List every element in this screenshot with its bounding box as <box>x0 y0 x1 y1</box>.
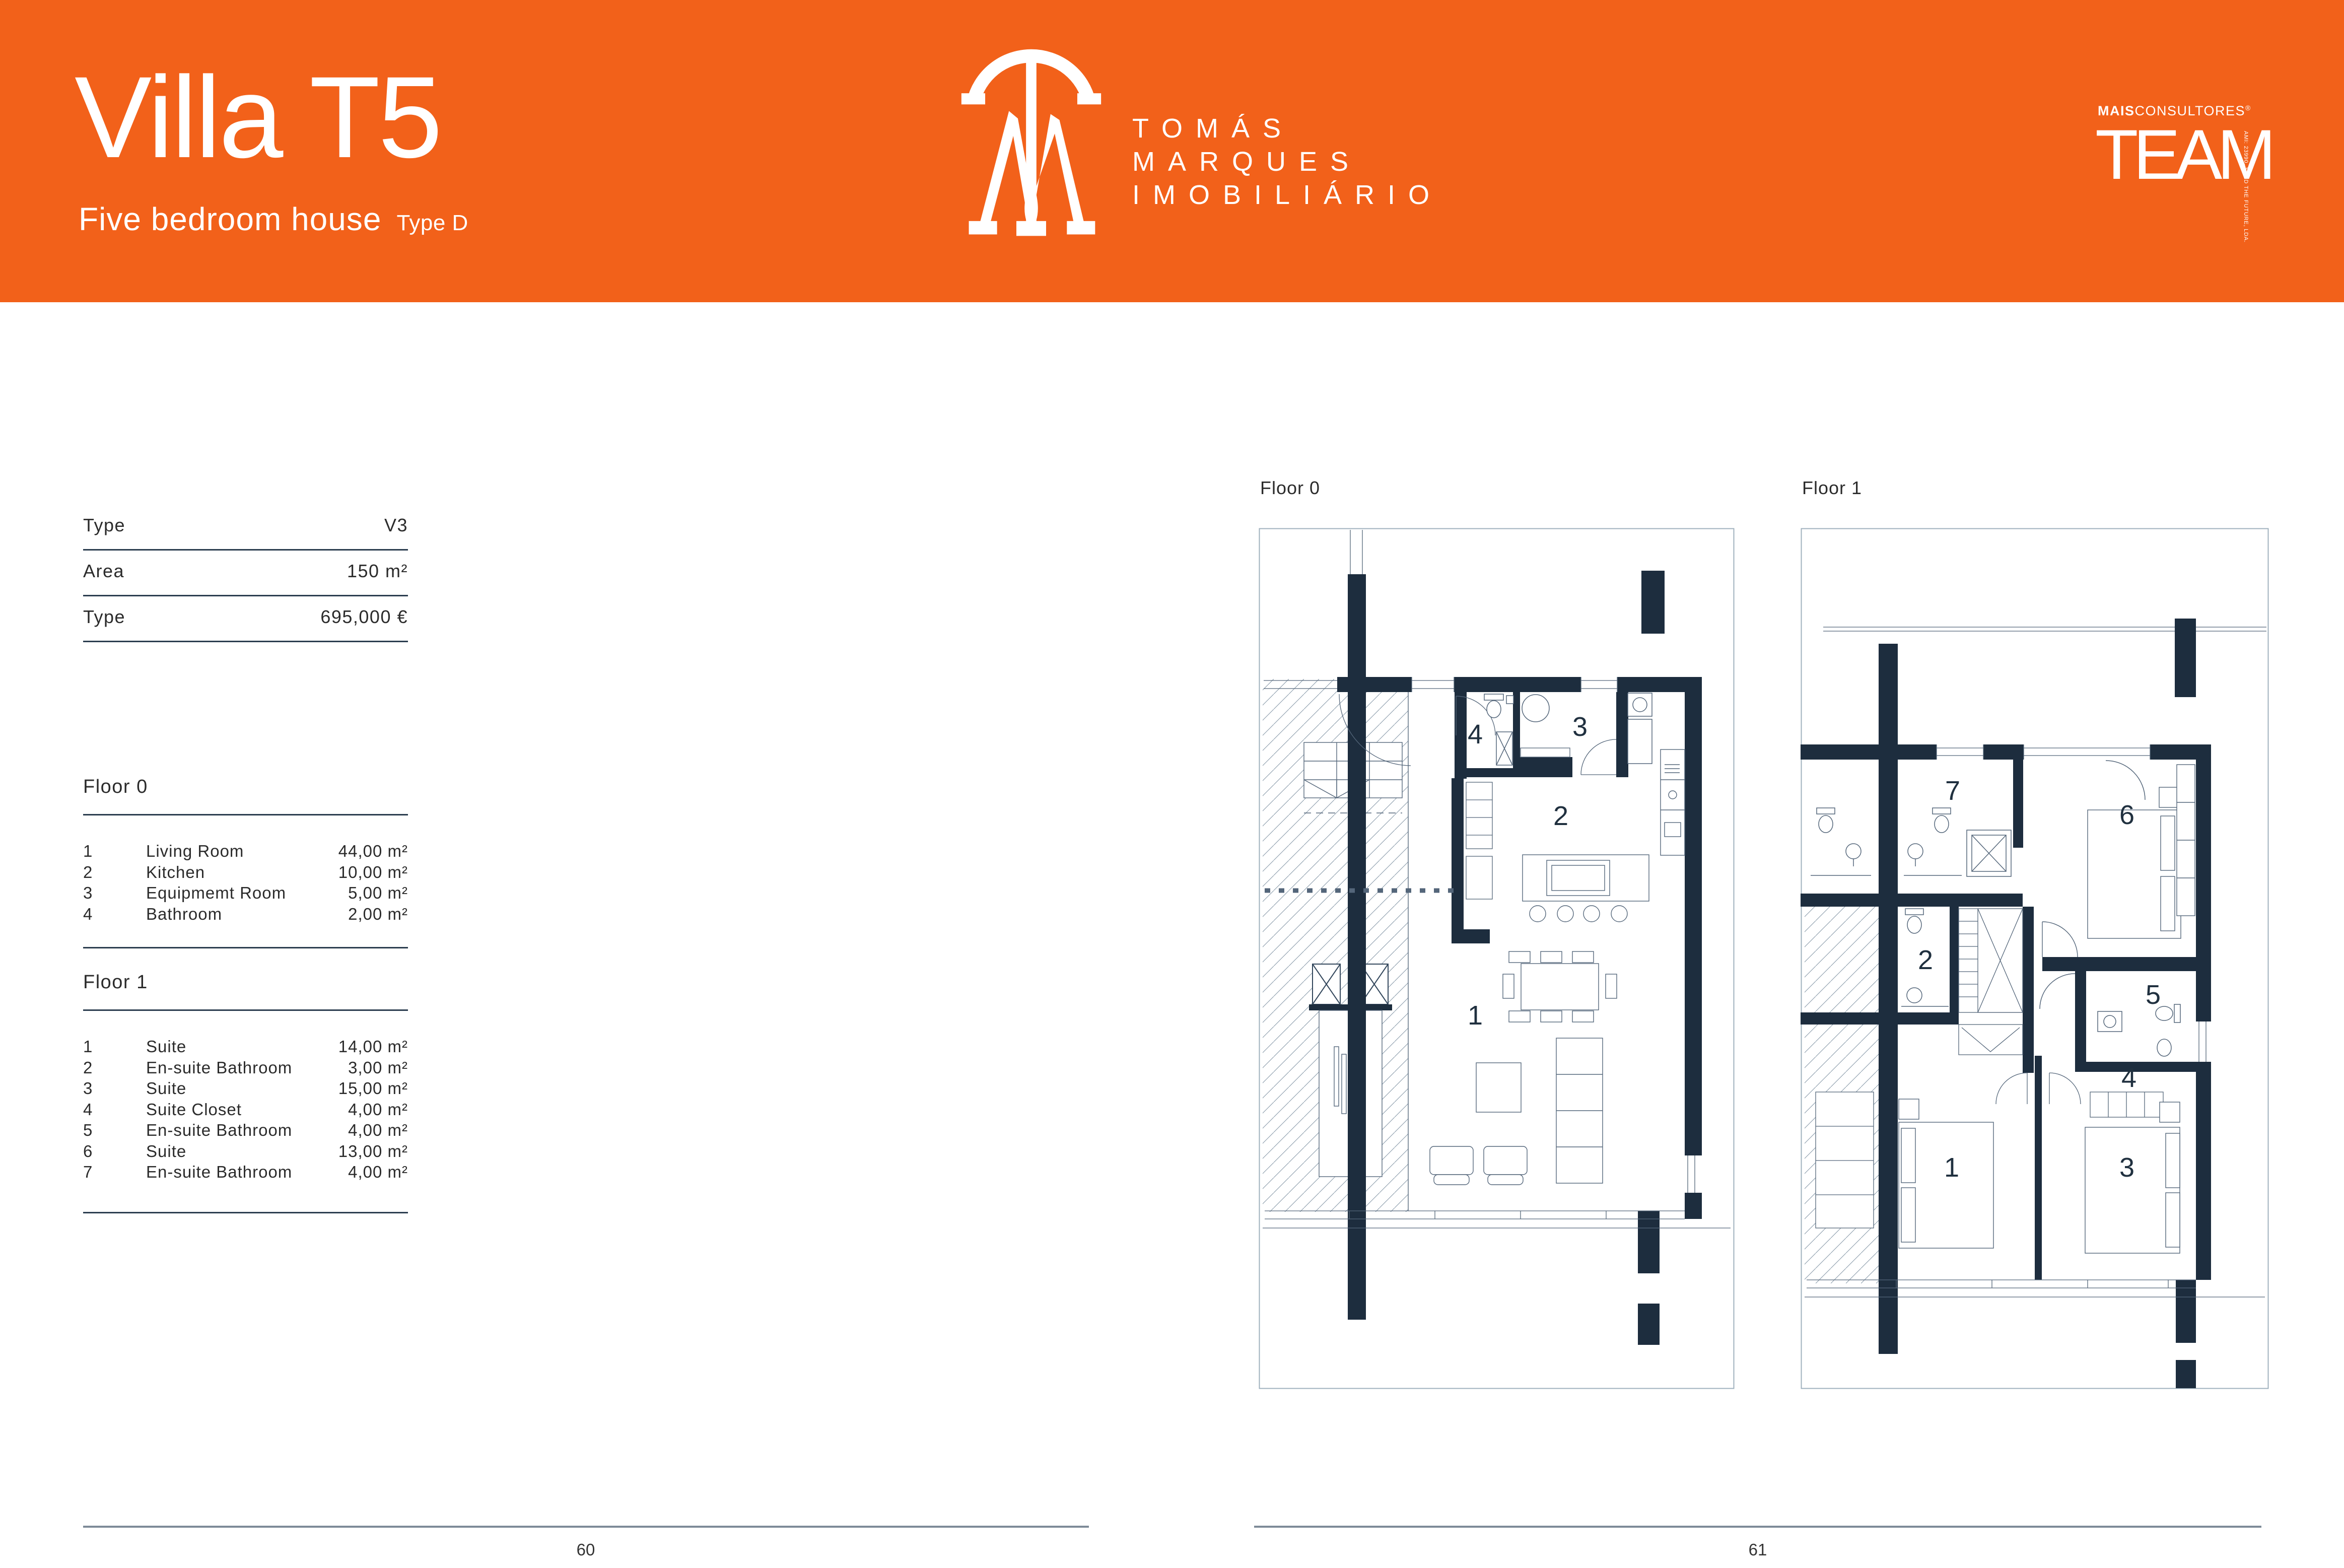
stool-icon <box>1611 906 1627 922</box>
divider <box>83 1212 408 1213</box>
room-label: 6 <box>2119 800 2134 830</box>
tm-monogram-icon <box>957 28 1106 257</box>
stairs <box>1959 909 2023 1055</box>
pillow <box>2161 876 2175 931</box>
list-item: 1Living Room44,00 m² <box>83 841 408 862</box>
room-area: 4,00 m² <box>348 1099 408 1120</box>
list-item: 2Kitchen10,00 m² <box>83 862 408 883</box>
boiler-icon <box>1522 695 1549 722</box>
floor0-legend: Floor 0 1Living Room44,00 m² 2Kitchen10,… <box>83 776 408 948</box>
room-name: En-suite Bathroom <box>146 1057 348 1078</box>
dining-set <box>1503 951 1617 1022</box>
room-label: 1 <box>1944 1152 1959 1183</box>
room-area: 4,00 m² <box>348 1120 408 1141</box>
spec-row-type: Type V3 <box>83 505 408 551</box>
toilet-icon <box>2174 1004 2180 1022</box>
room-number: 1 <box>83 841 146 862</box>
room-area: 13,00 m² <box>338 1141 408 1162</box>
room-area: 44,00 m² <box>338 841 408 862</box>
door-arc <box>2042 922 2078 957</box>
room-number: 2 <box>83 862 146 883</box>
spec-label: Type <box>83 606 125 628</box>
toilet-icon <box>1933 808 1951 814</box>
sink-icon <box>1846 844 1861 859</box>
floor0-room-list: 1Living Room44,00 m² 2Kitchen10,00 m² 3E… <box>83 841 408 924</box>
list-item: 4Bathroom2,00 m² <box>83 904 408 925</box>
toilet-icon <box>1819 815 1833 833</box>
header-band: Villa T5 Five bedroom houseType D <box>0 0 2344 302</box>
spec-table: Type V3 Area 150 m² Type 695,000 € <box>83 505 408 642</box>
stool-icon <box>1557 906 1573 922</box>
floor1-legend: Floor 1 1Suite14,00 m² 2En-suite Bathroo… <box>83 971 408 1213</box>
room-area: 2,00 m² <box>348 904 408 925</box>
room-label: 2 <box>1918 945 1933 975</box>
room-label: 3 <box>1572 712 1588 742</box>
room-name: Living Room <box>146 841 338 862</box>
nightstand <box>1899 1099 1919 1119</box>
floor1-plan-drawing: 1 2 3 4 5 6 7 <box>1801 528 2269 1389</box>
sink-icon <box>1907 988 1922 1003</box>
stool-icon <box>1583 906 1600 922</box>
chair-icon <box>1509 951 1530 963</box>
suite6-furniture <box>2042 765 2195 957</box>
appliance-icon <box>1628 719 1652 764</box>
room-number: 3 <box>83 882 146 904</box>
room-number: 1 <box>83 1036 146 1057</box>
room-name: En-suite Bathroom <box>146 1162 348 1183</box>
pillow <box>2166 1133 2180 1188</box>
page-title: Villa T5 <box>75 59 441 175</box>
toilet-icon <box>1905 909 1923 915</box>
page-subtitle: Five bedroom houseType D <box>79 200 468 238</box>
partner-logo: MAISCONSULTORES® TEAM AMI: 23990. SEED T… <box>2098 103 2251 119</box>
toilet-icon <box>1935 815 1949 833</box>
divider <box>83 947 408 948</box>
pillow <box>2161 816 2175 870</box>
toilet-icon <box>1907 916 1921 933</box>
list-item: 2En-suite Bathroom3,00 m² <box>83 1057 408 1078</box>
subtitle-text: Five bedroom house <box>79 201 381 237</box>
footer-divider-right <box>1254 1526 2261 1528</box>
room-area: 4,00 m² <box>348 1162 408 1183</box>
floor0-heading: Floor 0 <box>83 776 408 798</box>
room-number: 4 <box>83 904 146 925</box>
list-item: 5En-suite Bathroom4,00 m² <box>83 1120 408 1141</box>
door-arc <box>2106 761 2145 800</box>
registered-mark: ® <box>2245 104 2251 112</box>
dining-table <box>1521 964 1599 1010</box>
floor0-plan-drawing: 1 2 3 4 <box>1259 528 1735 1389</box>
list-item: 4Suite Closet4,00 m² <box>83 1099 408 1120</box>
toilet-icon <box>1487 701 1501 718</box>
room-number: 7 <box>83 1162 146 1183</box>
bidet-icon <box>2157 1039 2171 1056</box>
room-area: 5,00 m² <box>348 882 408 904</box>
floor0-plan: 1 2 3 4 <box>1259 528 1735 1392</box>
room-label: 7 <box>1945 776 1960 806</box>
page-number-left: 60 <box>566 1540 606 1559</box>
list-item: 6Suite13,00 m² <box>83 1141 408 1162</box>
kitchen-counter <box>1661 749 1685 855</box>
brand-line-3: IMOBILIÁRIO <box>1132 178 1442 212</box>
room-name: Kitchen <box>146 862 338 883</box>
floor1-room-list: 1Suite14,00 m² 2En-suite Bathroom3,00 m²… <box>83 1036 408 1183</box>
closet-box <box>1816 1092 1874 1228</box>
spec-label: Area <box>83 561 124 582</box>
spec-value: 695,000 € <box>320 606 408 628</box>
bath-floor <box>1805 760 1879 894</box>
coffee-table <box>1476 1063 1521 1112</box>
brand-wordmark: TOMÁS MARQUES IMOBILIÁRIO <box>1132 112 1442 212</box>
plan1-label: Floor 1 <box>1802 478 1862 499</box>
room-label: 4 <box>1468 719 1483 749</box>
divider <box>83 814 408 815</box>
spec-value: V3 <box>384 515 408 536</box>
stove-icon <box>1669 791 1677 799</box>
list-item: 3Equipmemt Room5,00 m² <box>83 882 408 904</box>
chair-icon <box>1606 974 1617 998</box>
list-item: 3Suite15,00 m² <box>83 1078 408 1099</box>
partner-side-note: AMI: 23990. SEED THE FUTURE, LDA. <box>2243 131 2249 243</box>
chair-icon <box>1541 1011 1562 1022</box>
bathroom-fixtures <box>1484 694 1513 765</box>
type-tag: Type D <box>396 211 468 235</box>
brand-line-2: MARQUES <box>1132 145 1442 178</box>
chair-icon <box>1503 974 1514 998</box>
brand-line-1: TOMÁS <box>1132 112 1442 145</box>
chair-icon <box>1541 951 1562 963</box>
living-furniture <box>1430 1038 1603 1185</box>
kitchen-island <box>1523 855 1649 922</box>
toilet-icon <box>1817 808 1835 814</box>
flush-icon <box>1506 696 1513 704</box>
brochure-page: Villa T5 Five bedroom houseType D <box>0 0 2344 1568</box>
room-area: 10,00 m² <box>338 862 408 883</box>
pillow <box>1901 1188 1915 1242</box>
pillow <box>1901 1128 1915 1183</box>
plan0-label: Floor 0 <box>1260 478 1320 499</box>
room-label: 1 <box>1468 1000 1483 1031</box>
spec-row-area: Area 150 m² <box>83 551 408 596</box>
list-item: 1Suite14,00 m² <box>83 1036 408 1057</box>
room-number: 3 <box>83 1078 146 1099</box>
footer-divider-left <box>83 1526 1089 1528</box>
chair-icon <box>1572 951 1594 963</box>
spec-value: 150 m² <box>347 561 408 582</box>
room-number: 5 <box>83 1120 146 1141</box>
room-name: Suite Closet <box>146 1099 348 1120</box>
floor1-plan: 1 2 3 4 5 6 7 <box>1801 528 2269 1392</box>
chair-icon <box>1572 1011 1594 1022</box>
list-item: 7En-suite Bathroom4,00 m² <box>83 1162 408 1183</box>
room-name: Bathroom <box>146 904 348 925</box>
room-label: 4 <box>2121 1063 2136 1093</box>
room-number: 4 <box>83 1099 146 1120</box>
armchair-icon <box>1430 1146 1473 1175</box>
room-name: Suite <box>146 1036 338 1057</box>
pillow <box>2166 1193 2180 1247</box>
suite-closet <box>2090 1092 2163 1117</box>
brand-logo <box>957 28 1106 259</box>
spec-row-price: Type 695,000 € <box>83 596 408 642</box>
room-name: En-suite Bathroom <box>146 1120 348 1141</box>
room-label: 3 <box>2119 1152 2134 1183</box>
room-area: 3,00 m² <box>348 1057 408 1078</box>
room-area: 15,00 m² <box>338 1078 408 1099</box>
door-arc <box>2040 974 2075 1009</box>
armchair-icon <box>1484 1146 1527 1175</box>
spec-label: Type <box>83 515 125 536</box>
chair-icon <box>1509 1011 1530 1022</box>
nightstand <box>2159 787 2179 807</box>
floor1-heading: Floor 1 <box>83 971 408 993</box>
room-name: Equipmemt Room <box>146 882 348 904</box>
room-area: 14,00 m² <box>338 1036 408 1057</box>
nightstand <box>2160 1102 2180 1122</box>
room-name: Suite <box>146 1078 338 1099</box>
room-name: Suite <box>146 1141 338 1162</box>
divider <box>83 1009 408 1011</box>
toilet-icon <box>1484 694 1503 700</box>
room-label: 5 <box>2146 980 2161 1010</box>
hall-closet <box>1466 782 1492 899</box>
room-label: 2 <box>1553 801 1568 831</box>
page-number-right: 61 <box>1738 1540 1778 1559</box>
sink-icon <box>1908 844 1923 859</box>
room-number: 6 <box>83 1141 146 1162</box>
room-number: 2 <box>83 1057 146 1078</box>
stool-icon <box>1530 906 1546 922</box>
